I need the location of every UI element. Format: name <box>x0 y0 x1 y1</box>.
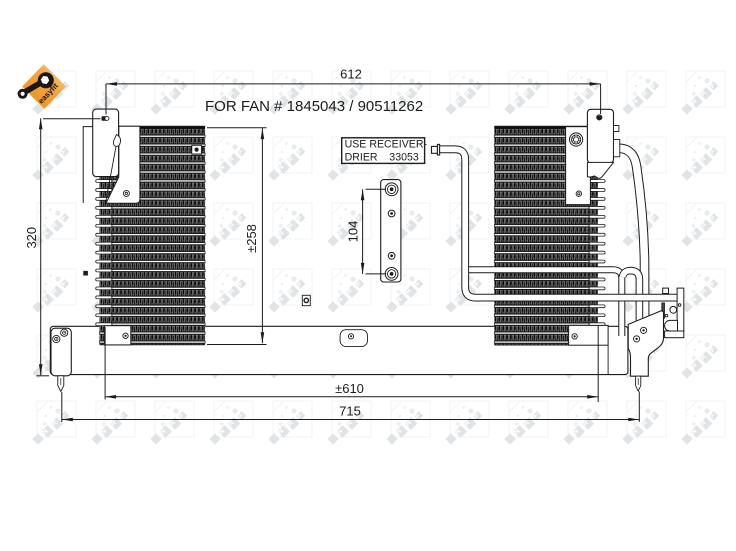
svg-text:USE RECEIVER-: USE RECEIVER- <box>345 138 428 150</box>
svg-text:104: 104 <box>345 221 360 243</box>
svg-text:715: 715 <box>339 404 361 419</box>
svg-text:±610: ±610 <box>335 381 364 396</box>
svg-text:320: 320 <box>24 227 39 249</box>
svg-text:33053: 33053 <box>389 151 419 163</box>
svg-text:DRIER: DRIER <box>345 151 378 163</box>
svg-text:±258: ±258 <box>244 224 259 253</box>
svg-text:FOR FAN # 1845043 / 90511262: FOR FAN # 1845043 / 90511262 <box>205 98 423 115</box>
svg-text:612: 612 <box>340 67 362 82</box>
